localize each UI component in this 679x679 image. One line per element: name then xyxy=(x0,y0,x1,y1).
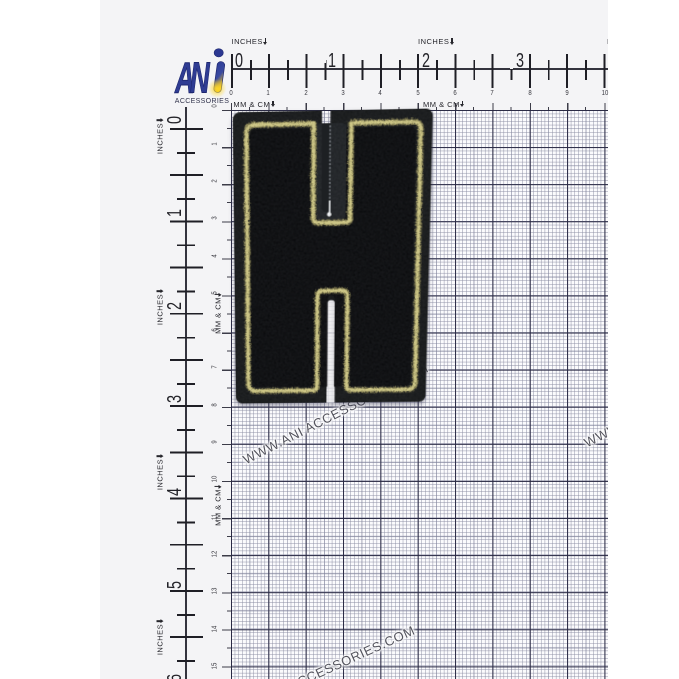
svg-text:N: N xyxy=(190,53,211,102)
